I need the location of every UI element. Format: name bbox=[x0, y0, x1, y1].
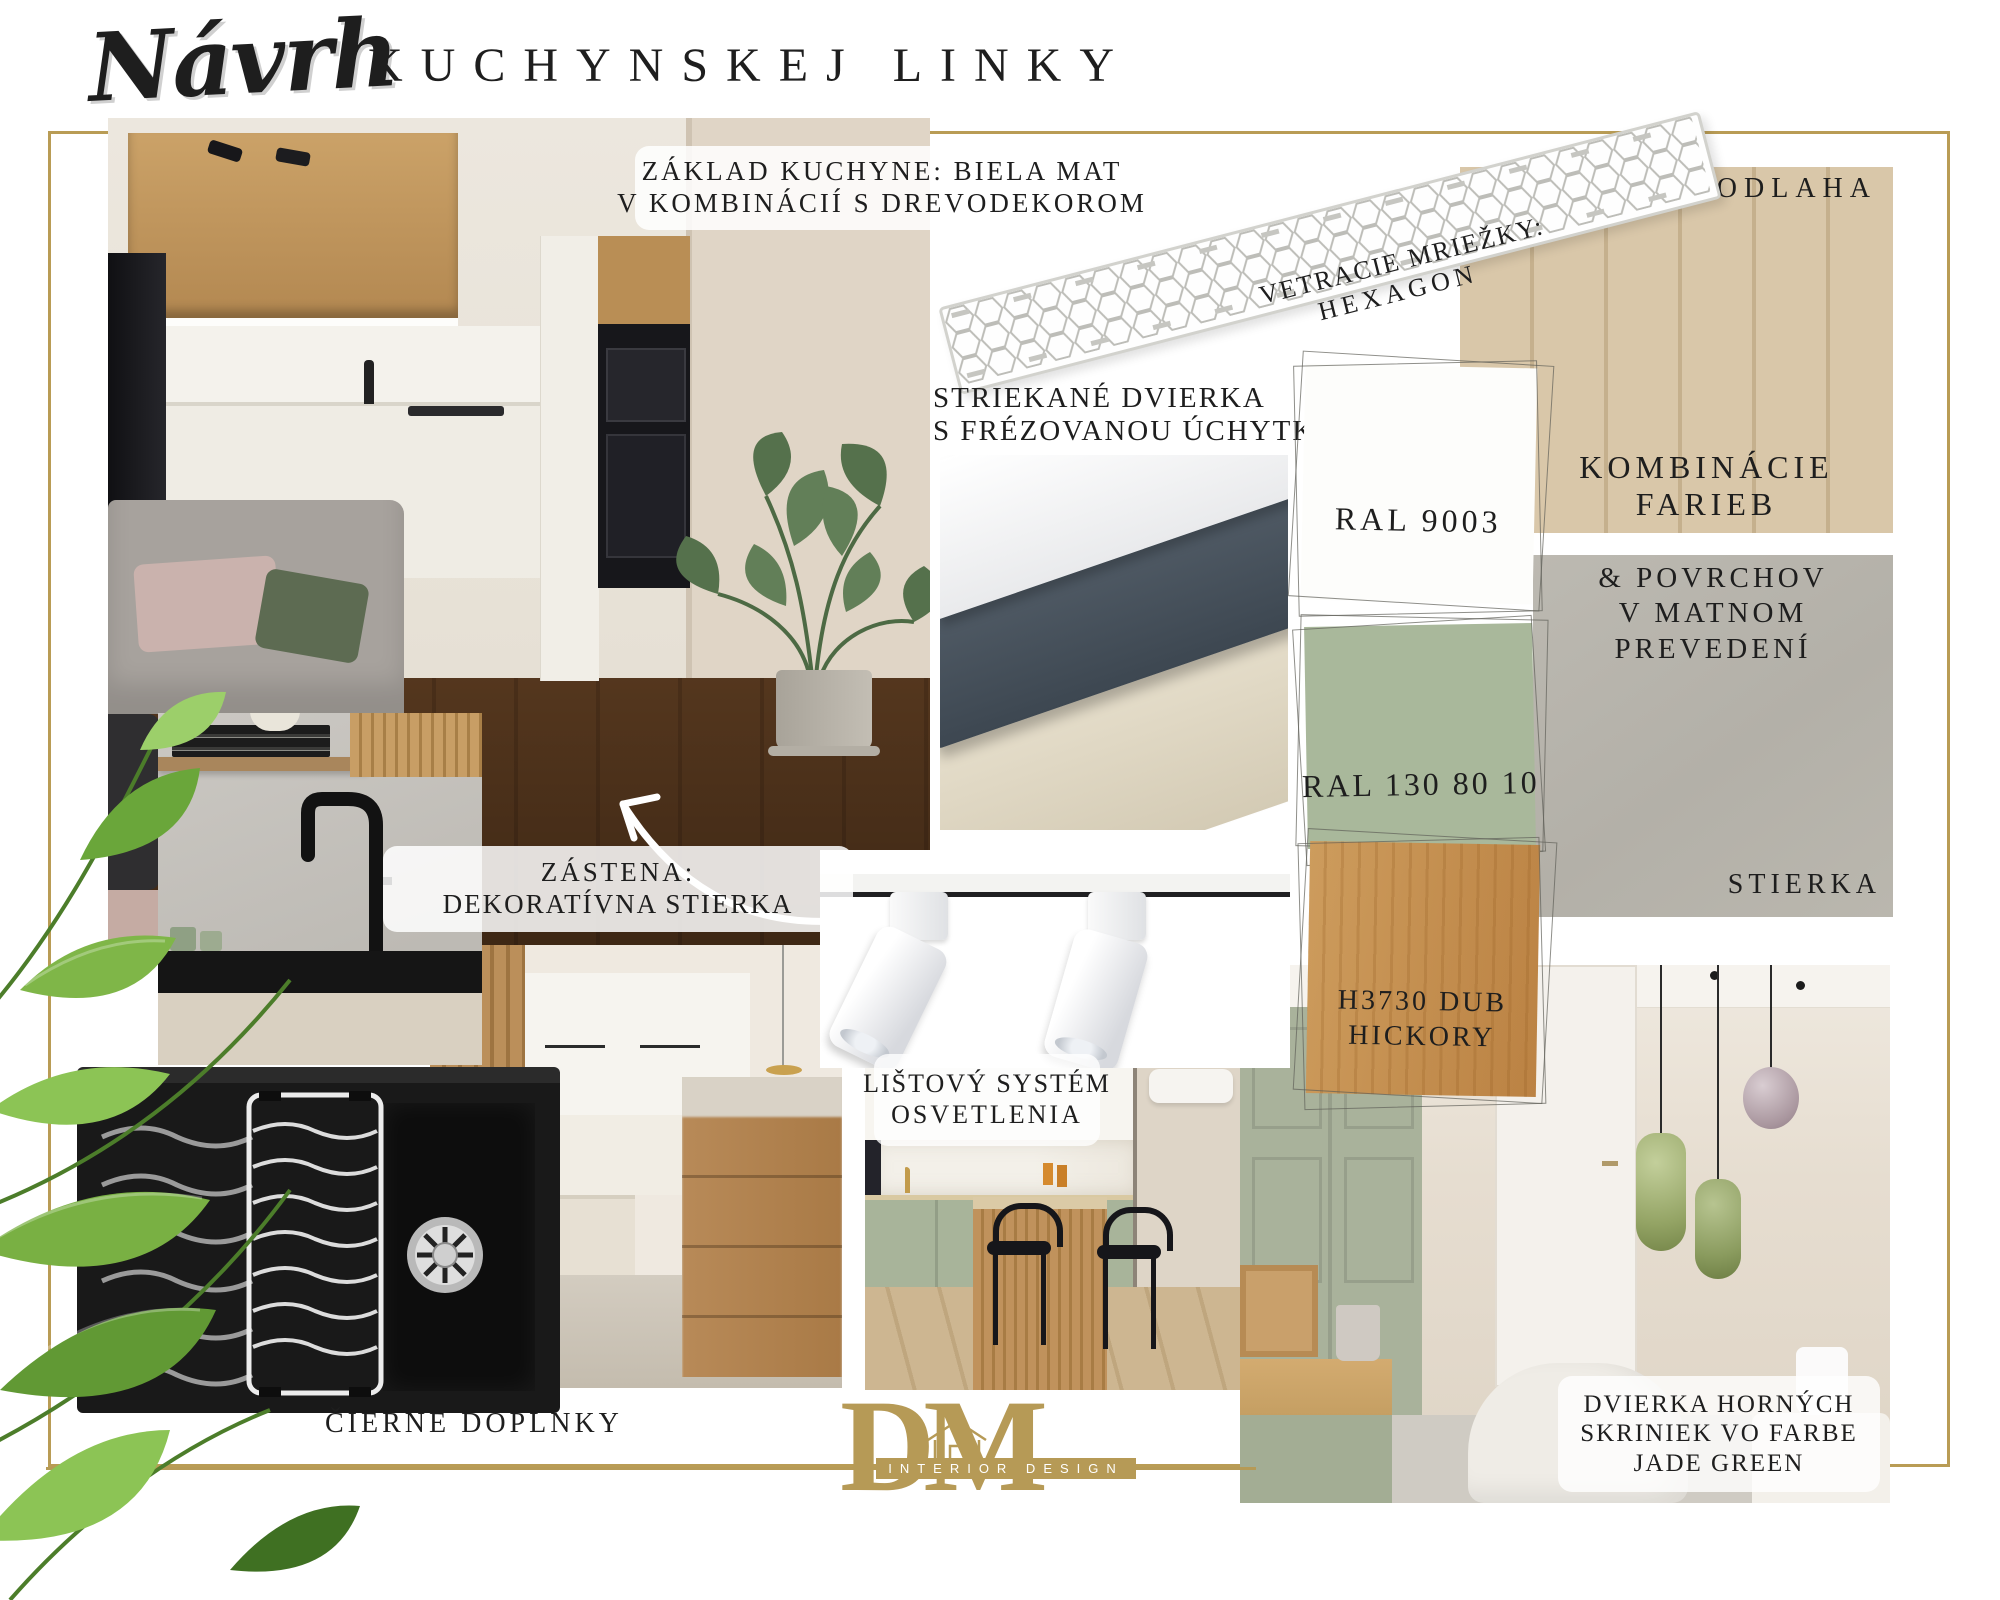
jade-green-label: DVIERKA HORNÝCH SKRINIEK VO FARBE JADE G… bbox=[1558, 1376, 1880, 1492]
zastena-label: ZÁSTENA: DEKORATÍVNA STIERKA bbox=[383, 846, 853, 932]
sketch-frame-icon bbox=[1292, 615, 1546, 866]
oil-bottles bbox=[1043, 1163, 1053, 1185]
pendant-cord bbox=[782, 945, 784, 1067]
pendant-cord bbox=[1717, 965, 1719, 1181]
track-light-photo bbox=[820, 850, 1290, 1068]
stool-leg bbox=[993, 1253, 998, 1345]
striekane-dvierka-label: STRIEKANÉ DVIERKA S FRÉZOVANOU ÚCHYTKOU bbox=[933, 382, 1361, 449]
cabinet-handle bbox=[545, 1045, 605, 1048]
povrchov-label: & POVRCHOV V MATNOM PREVEDENÍ bbox=[1533, 561, 1893, 667]
white-backsplash bbox=[138, 326, 548, 402]
cabinet-handle bbox=[640, 1045, 700, 1048]
zastena-line1: ZÁSTENA: bbox=[541, 857, 696, 889]
swatch-h3730-line2: HICKORY bbox=[1337, 1018, 1507, 1056]
cooktop bbox=[408, 406, 504, 416]
island-drawer-lines bbox=[682, 1175, 842, 1178]
listovy-line2: OSVETLENIA bbox=[891, 1100, 1083, 1131]
stool-leg bbox=[1103, 1257, 1108, 1349]
swatch-h3730: H3730 DUB HICKORY bbox=[1306, 841, 1540, 1097]
povrchy-line2: V MATNOM bbox=[1533, 596, 1893, 631]
door-handle bbox=[1602, 1161, 1618, 1166]
utensil-jar bbox=[1336, 1305, 1380, 1361]
striekane-line2: S FRÉZOVANOU ÚCHYTKOU bbox=[933, 415, 1361, 448]
plant-pot bbox=[776, 670, 872, 750]
sketch-frame-icon bbox=[1297, 837, 1546, 1110]
black-faucet-small bbox=[364, 360, 374, 404]
zaklad-line1: ZÁKLAD KUCHYNE: BIELA MAT bbox=[642, 156, 1123, 188]
wood-shelf-cube bbox=[1240, 1265, 1318, 1357]
swatch-ral-130-80-10-code: RAL 130 80 10 bbox=[1302, 763, 1540, 804]
sketch-frame-icon bbox=[1295, 614, 1548, 852]
dvierka-line1: DVIERKA HORNÝCH bbox=[1584, 1390, 1855, 1420]
sketch-frame-icon bbox=[1288, 351, 1555, 612]
swatch-h3730-code: H3730 DUB HICKORY bbox=[1337, 983, 1508, 1056]
listovy-line1: LIŠTOVÝ SYSTÉM bbox=[863, 1069, 1111, 1100]
swatch-ral-9003-code: RAL 9003 bbox=[1334, 500, 1502, 540]
smoke-glass-pendant bbox=[1743, 1067, 1799, 1129]
dvierka-line2: SKRINIEK VO FARBE bbox=[1580, 1419, 1858, 1449]
swatch-ral-130-80-10: RAL 130 80 10 bbox=[1304, 623, 1536, 849]
spotlight-cylinder bbox=[825, 922, 951, 1068]
page-title: KUCHYNSKEJ LINKY bbox=[368, 38, 1132, 93]
swatch-h3730-line1: H3730 DUB bbox=[1337, 983, 1507, 1021]
stool-leg bbox=[1041, 1253, 1046, 1345]
logo-line-right bbox=[1136, 1467, 1256, 1470]
sprayed-doors-photo bbox=[940, 455, 1288, 830]
plaster-sample: & POVRCHOV V MATNOM PREVEDENÍ STIERKA bbox=[1533, 555, 1893, 917]
sketch-frame-icon bbox=[1293, 360, 1543, 616]
black-fridge bbox=[108, 253, 166, 515]
logo-subtitle: INTERIOR DESIGN bbox=[888, 1461, 1124, 1476]
dm-logo: DM INTERIOR DESIGN bbox=[836, 1396, 1136, 1566]
spotlight-cylinder bbox=[1041, 926, 1150, 1068]
marble-backsplash bbox=[872, 1140, 1140, 1195]
listovy-system-label: LIŠTOVÝ SYSTÉM OSVETLENIA bbox=[874, 1054, 1100, 1146]
green-glass-pendant bbox=[1636, 1133, 1686, 1251]
gold-faucet bbox=[905, 1167, 910, 1193]
gray-sofa bbox=[108, 500, 404, 714]
pendant-cord bbox=[1770, 965, 1772, 1069]
zastena-line2: DEKORATÍVNA STIERKA bbox=[443, 889, 794, 921]
zaklad-kuchyne-label: ZÁKLAD KUCHYNE: BIELA MAT V KOMBINÁCIÍ S… bbox=[635, 146, 1129, 230]
logo-band: INTERIOR DESIGN bbox=[876, 1458, 1136, 1479]
leaf-decoration bbox=[0, 690, 430, 1600]
podlaha-label: PODLAHA bbox=[1694, 173, 1877, 205]
cabinet-seams bbox=[935, 1200, 938, 1287]
stool-leg bbox=[1151, 1257, 1156, 1349]
shaker-panel bbox=[1344, 1157, 1414, 1283]
pendant-gold-disc bbox=[766, 1065, 802, 1075]
green-glass-pendant bbox=[1695, 1179, 1741, 1279]
tall-white-cabinet bbox=[540, 236, 599, 681]
stierka-label: STIERKA bbox=[1728, 869, 1881, 901]
wood-counter bbox=[1240, 1359, 1392, 1415]
page-title-script: Návrh bbox=[85, 0, 400, 124]
led-strip bbox=[128, 318, 458, 326]
dvierka-line3: JADE GREEN bbox=[1634, 1449, 1805, 1479]
mood-board: Návrh KUCHYNSKEJ LINKY bbox=[0, 0, 2000, 1600]
oven-upper bbox=[606, 348, 686, 422]
striekane-line1: STRIEKANÉ DVIERKA bbox=[933, 382, 1361, 415]
povrchy-line1: & POVRCHOV bbox=[1533, 561, 1893, 596]
green-pillow bbox=[254, 568, 370, 665]
sketch-frame-icon bbox=[1293, 828, 1558, 1104]
swatch-ral-9003: RAL 9003 bbox=[1301, 364, 1538, 605]
green-base-cabinet bbox=[1240, 1415, 1392, 1503]
pendant-cord bbox=[1660, 965, 1662, 1135]
zaklad-line2: V KOMBINÁCIÍ S DREVODEKOROM bbox=[617, 188, 1147, 220]
ceiling-dot-icon bbox=[1796, 981, 1805, 990]
wood-island bbox=[682, 1077, 842, 1377]
ac-unit bbox=[1149, 1069, 1233, 1103]
povrchy-line3: PREVEDENÍ bbox=[1533, 632, 1893, 667]
